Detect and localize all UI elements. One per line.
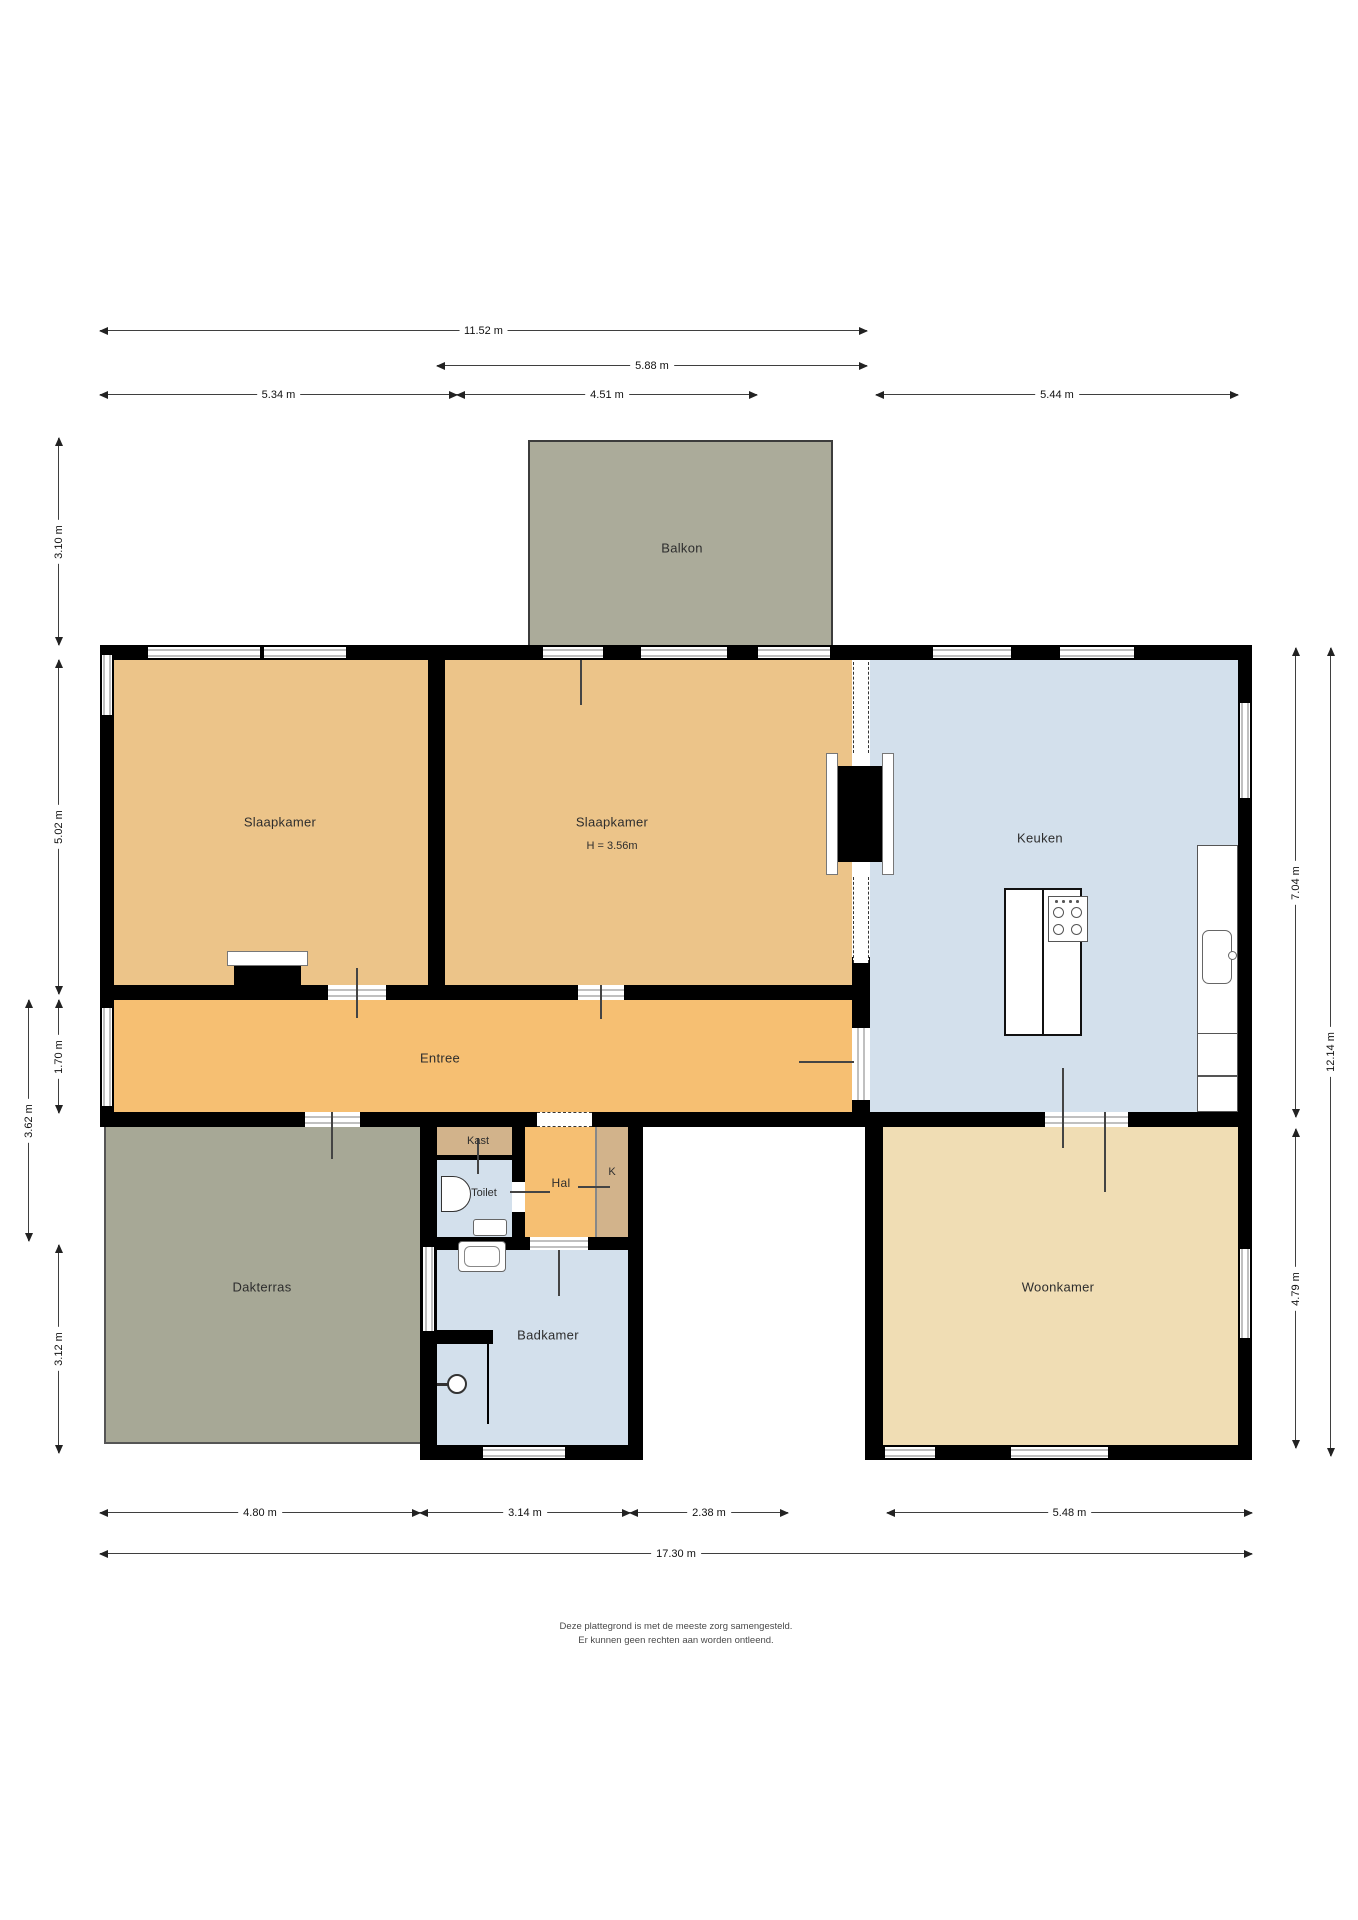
label-k-closet: K [608,1166,615,1178]
stove-knob [1055,900,1058,903]
dimension-right-keuken: 7.04 m [1295,648,1296,1117]
wall [100,1112,870,1127]
disclaimer: Deze plattegrond is met de meeste zorg s… [560,1620,793,1648]
label-badkamer: Badkamer [517,1328,579,1343]
burner [1053,924,1064,935]
dimension-top-bedroom2: 4.51 m [457,394,757,395]
dimension-bottom-woonkamer: 5.48 m [887,1512,1252,1513]
chimney-panel [826,753,838,875]
dimension-bottom-total: 17.30 m [100,1553,1252,1554]
closet-mark [578,1186,610,1188]
dimension-top-bedroom1: 5.34 m [100,394,457,395]
room-badkamer [437,1250,628,1445]
closet-body [234,966,301,985]
label-toilet: Toilet [471,1187,497,1199]
dimension-value: 4.80 m [238,1507,282,1519]
dimension-value: 1.70 m [53,1035,65,1079]
dimension-value: 3.12 m [53,1327,65,1371]
kitchen-cabinet [1197,1076,1238,1112]
dimension-value: 2.38 m [687,1507,731,1519]
floorplan-canvas: Balkon Slaapkamer Slaapkamer H = 3.56m K… [0,0,1358,1920]
open-passage [537,1112,592,1127]
dimension-left-balkon: 3.10 m [58,438,59,645]
dimension-value: 5.88 m [630,360,674,372]
burner [1071,907,1082,918]
dimension-left-slaapkamer: 5.02 m [58,660,59,994]
dimension-value: 5.02 m [53,805,65,849]
dimension-top-keuken: 5.44 m [876,394,1238,395]
dimension-left-entree-zone: 3.62 m [28,1000,29,1241]
wall [865,1127,883,1445]
window [1240,1249,1250,1338]
window [758,647,830,658]
room-entree [114,1000,852,1112]
dimension-value: 3.10 m [53,520,65,564]
shower-head [447,1374,467,1394]
label-dakterras: Dakterras [232,1280,291,1295]
dimension-right-woonkamer: 4.79 m [1295,1129,1296,1448]
stove-knob [1076,900,1079,903]
open-passage [853,662,869,753]
wall [628,1127,643,1460]
dimension-value: 5.48 m [1048,1507,1092,1519]
room-keuken [870,660,1238,1112]
label-keuken: Keuken [1017,831,1063,846]
door-swing [331,1112,333,1159]
door-opening [530,1237,588,1250]
dimension-bottom-dakterras: 4.80 m [100,1512,420,1513]
label-ceiling-height: H = 3.56m [586,840,637,852]
dimension-value: 5.34 m [257,389,301,401]
bathroom-sink-basin [464,1246,500,1267]
window [641,647,727,658]
label-kast: Kast [467,1135,489,1147]
dimension-left-entree: 1.70 m [58,1000,59,1113]
window [423,1247,434,1331]
label-slaapkamer-2: Slaapkamer [576,815,648,830]
window [102,1008,112,1106]
sliding-door-mark [1104,1112,1106,1192]
label-slaapkamer-1: Slaapkamer [244,815,316,830]
dimension-value: 12.14 m [1325,1027,1337,1077]
chimney [838,766,882,862]
room-k-closet [597,1127,628,1237]
kitchen-tap [1228,951,1237,960]
door-opening [852,1028,870,1100]
door-swing [510,1191,550,1193]
window [885,1447,935,1458]
sliding-door-mark [1062,1068,1064,1148]
disclaimer-line-2: Er kunnen geen rechten aan worden ontlee… [560,1634,793,1648]
open-passage [853,877,869,963]
toilet-sink [473,1219,507,1236]
chimney-panel [882,753,894,875]
burner [1053,907,1064,918]
dimension-value: 4.79 m [1290,1267,1302,1311]
label-entree: Entree [420,1051,460,1066]
wall [428,660,445,985]
door-swing [600,985,602,1019]
burner [1071,924,1082,935]
stove-knob [1062,900,1065,903]
label-hal: Hal [552,1176,571,1190]
window [102,655,112,715]
balcony-door-sill [543,647,603,658]
stove [1048,896,1088,942]
room-slaapkamer-2 [445,660,852,985]
shower-screen [487,1344,489,1424]
dimension-value: 3.62 m [23,1099,35,1143]
door-swing [580,660,582,705]
window [1060,647,1134,658]
disclaimer-line-1: Deze plattegrond is met de meeste zorg s… [560,1620,793,1634]
wall [100,985,870,1000]
dimension-top-total: 11.52 m [100,330,867,331]
door-swing [558,1250,560,1296]
door-swing [799,1061,854,1063]
island-divider [1042,888,1044,1036]
shower-partition [437,1330,493,1344]
wall [852,1100,870,1112]
door-opening [512,1182,525,1212]
closet-slider [595,1127,597,1237]
closet-top [227,951,308,966]
window [483,1447,565,1458]
door-swing [356,968,358,1018]
wall [437,1155,512,1160]
dimension-value: 3.14 m [503,1507,547,1519]
window [933,647,1011,658]
window [264,647,346,658]
label-woonkamer: Woonkamer [1022,1280,1095,1295]
stove-knob [1069,900,1072,903]
label-balkon: Balkon [661,541,703,556]
wall [852,957,870,1028]
sliding-door [1045,1112,1128,1127]
dimension-top-bedroom2-zone: 5.88 m [437,365,867,366]
dimension-right-total: 12.14 m [1330,648,1331,1456]
window [1240,703,1250,798]
dimension-value: 11.52 m [459,325,508,337]
dimension-value: 5.44 m [1035,389,1079,401]
dimension-bottom-badkamer: 3.14 m [420,1512,630,1513]
kitchen-cabinet [1197,1033,1238,1076]
dimension-bottom-tussen: 2.38 m [630,1512,788,1513]
dimension-value: 17.30 m [651,1548,701,1560]
window [1011,1447,1108,1458]
window [148,647,260,658]
dimension-left-dakterras: 3.12 m [58,1245,59,1453]
dimension-value: 4.51 m [585,389,629,401]
dimension-value: 7.04 m [1290,861,1302,905]
